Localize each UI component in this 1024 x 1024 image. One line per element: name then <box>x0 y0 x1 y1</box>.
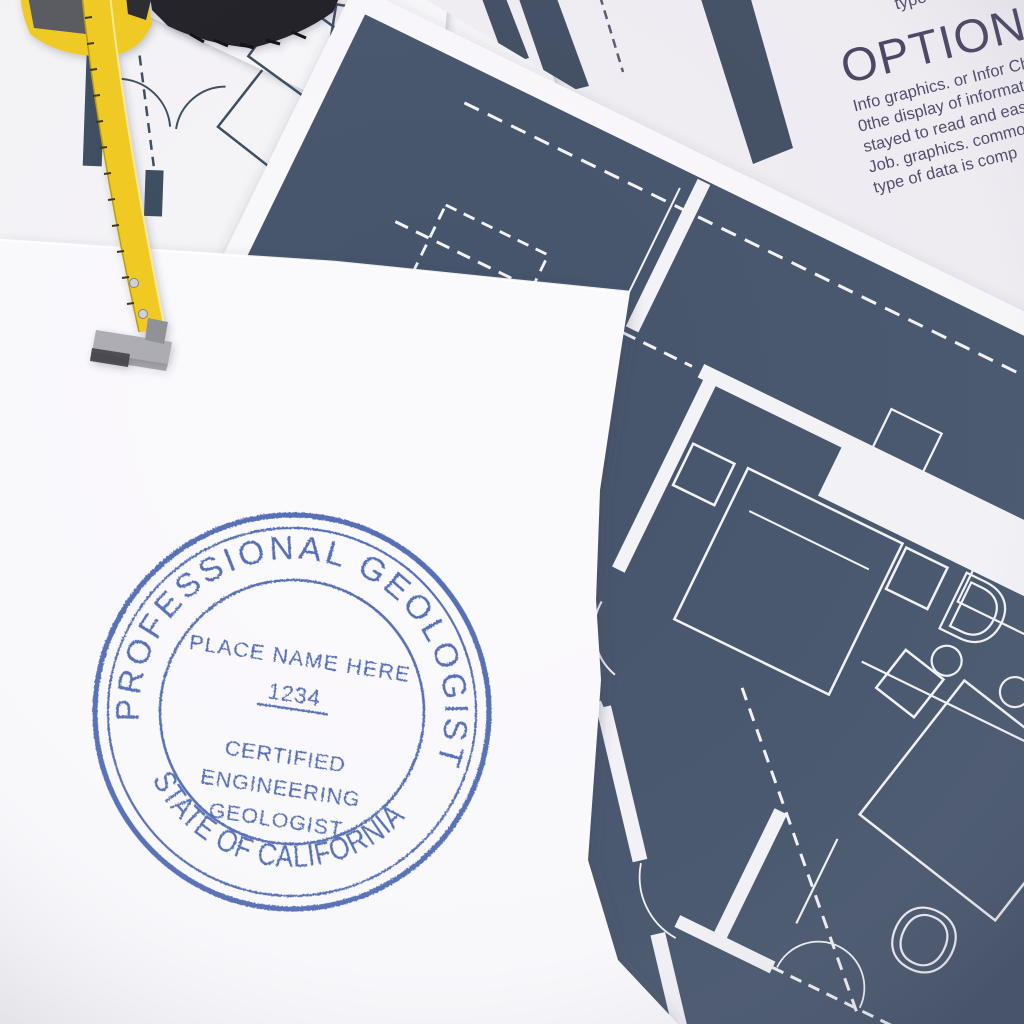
vignette-overlay <box>0 0 1024 1024</box>
photo-scene: type of OPTIONS Info graphics. or Infor … <box>0 0 1024 1024</box>
